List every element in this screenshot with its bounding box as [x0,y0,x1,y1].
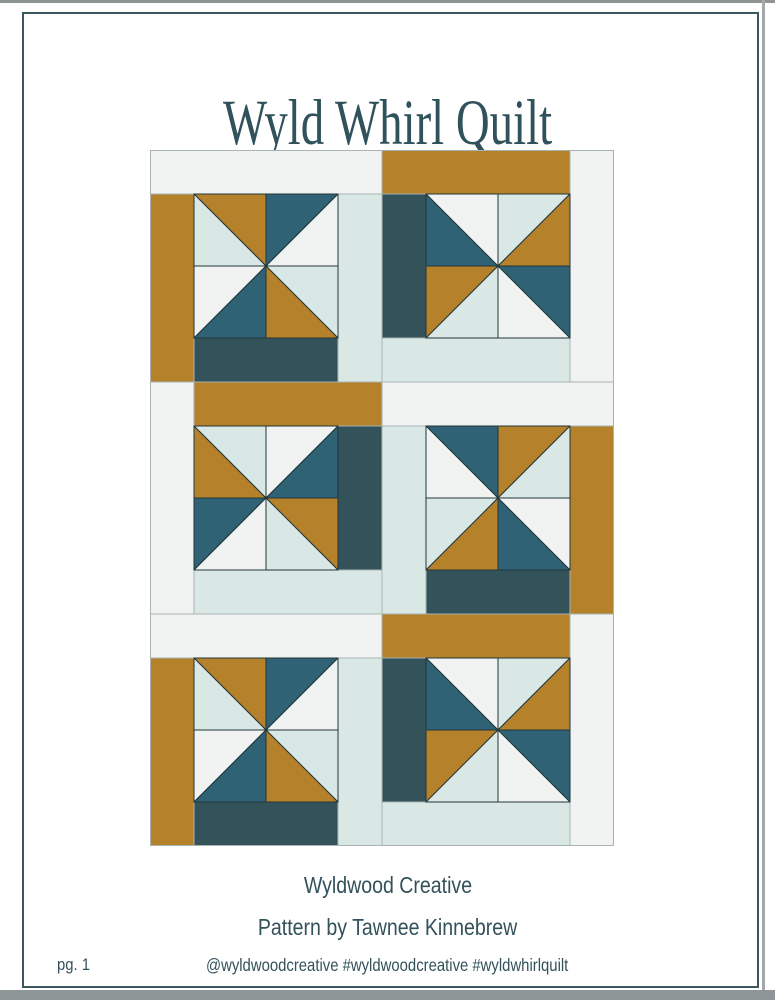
page-bottom-edge [0,990,775,1000]
footer-social-handles: @wyldwoodcreative #wyldwoodcreative #wyl… [0,955,775,976]
credit-company: Wyldwood Creative [0,872,775,899]
quilt-block-4-middle-right [382,382,614,614]
credit-designer: Pattern by Tawnee Kinnebrew [0,914,775,941]
quilt-block-2-top-right [382,150,614,382]
quilt-block-6-bottom-right [382,614,614,846]
quilt-block-1-top-left [150,150,382,382]
page-top-edge [0,0,775,3]
quilt-block-3-middle-left [150,382,382,614]
quilt-block-5-bottom-left [150,614,382,846]
quilt-diagram [150,150,614,846]
